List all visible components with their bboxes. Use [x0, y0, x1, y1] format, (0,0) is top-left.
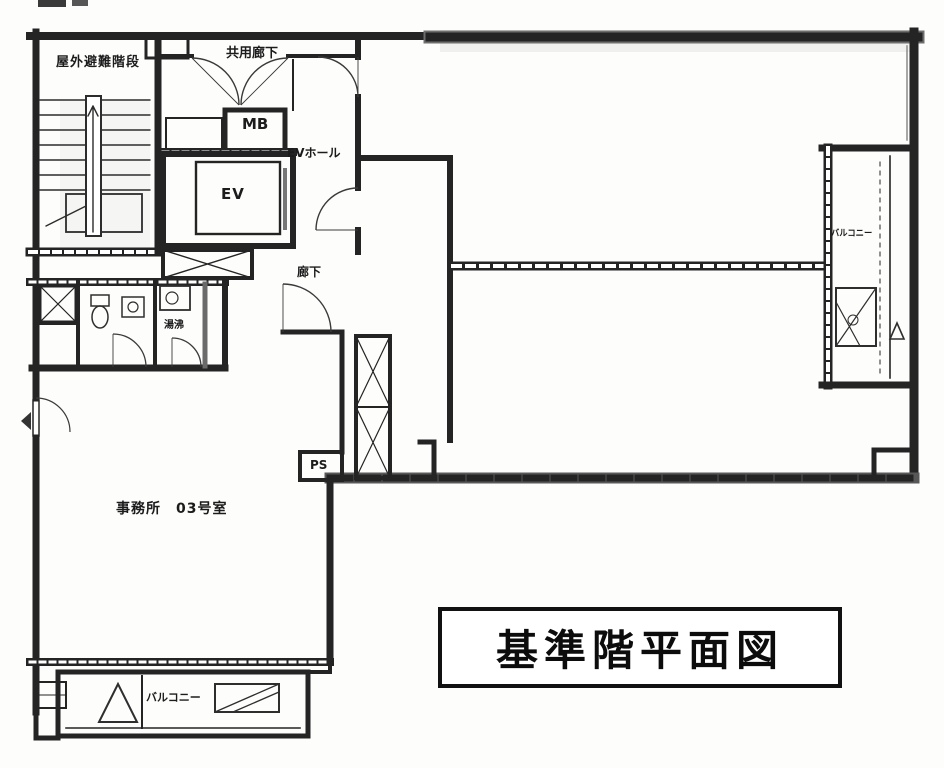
label-balcony-east: バルコニー — [831, 230, 872, 239]
label-evacuation-stairs: 屋外避難階段 — [56, 56, 140, 69]
label-office-unit-03: 事務所 03号室 — [116, 502, 227, 516]
label-balcony-south: バルコニー — [146, 692, 201, 703]
floorplan-page: 屋外避難階段 共用廊下 MB EV EVホール 廊下 湯沸 PS 事務所 03号… — [0, 0, 944, 768]
label-elevator-hall: EVホール — [287, 147, 341, 159]
label-pipe-space: PS — [310, 459, 327, 471]
plan-title-box: 基準階平面図 — [438, 607, 842, 688]
label-corridor: 廊下 — [297, 266, 321, 278]
label-meter-box: MB — [242, 117, 268, 132]
label-common-corridor: 共用廊下 — [226, 47, 278, 60]
label-elevator: EV — [221, 187, 245, 202]
plan-title: 基準階平面図 — [496, 617, 784, 678]
label-kitchenette: 湯沸 — [164, 321, 184, 331]
